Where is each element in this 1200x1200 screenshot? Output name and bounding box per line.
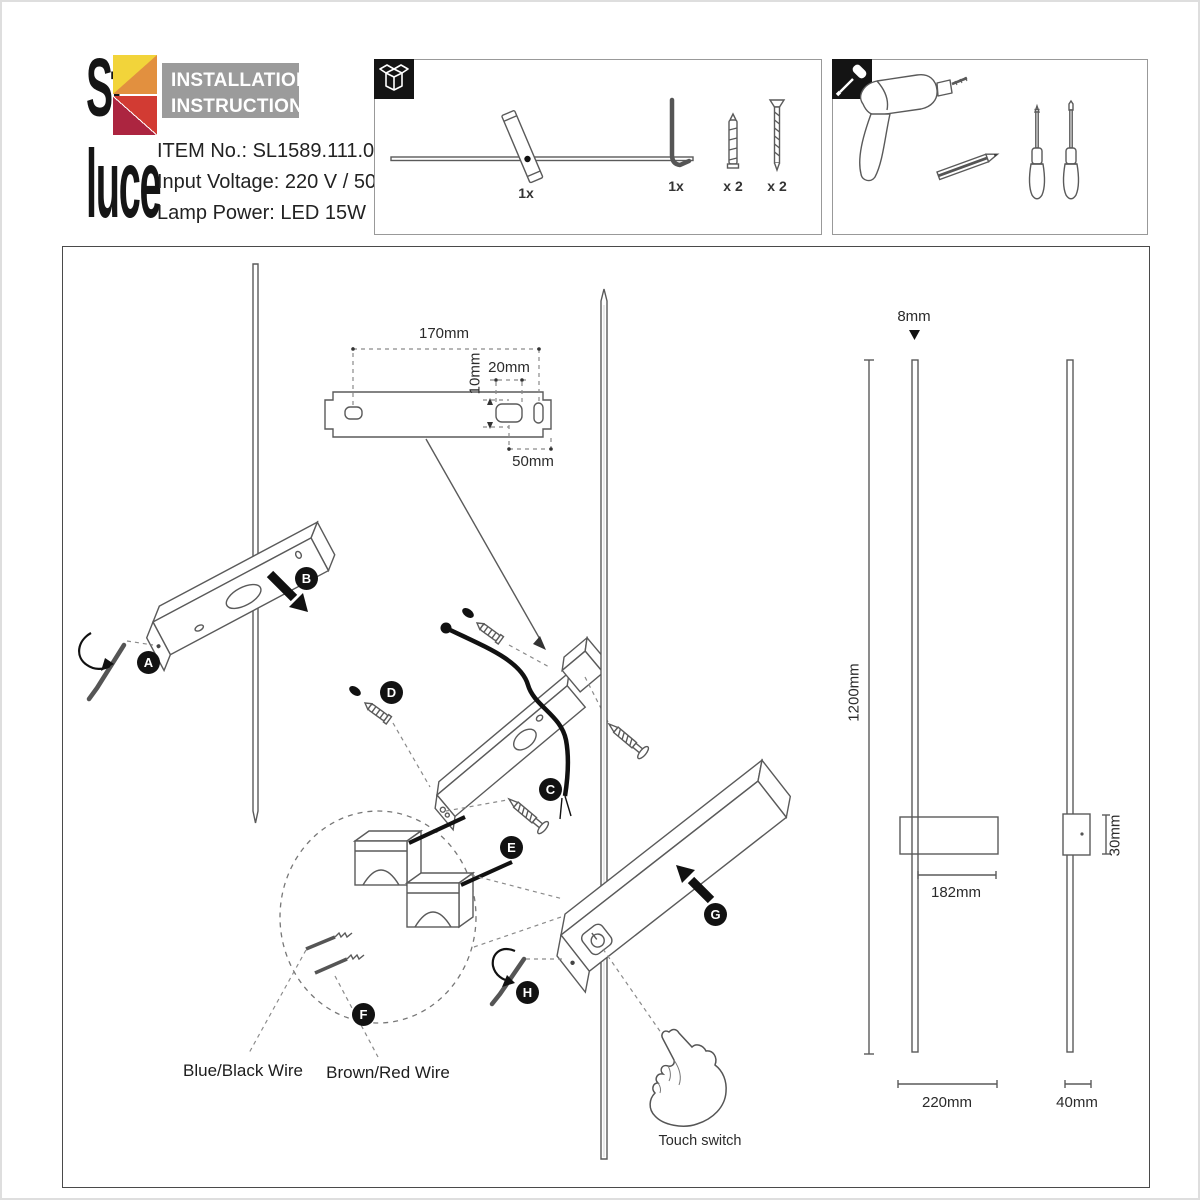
logo-color-mark-icon <box>113 55 157 135</box>
instruction-sheet: St luce INSTALLATION INSTRUCTIONS ITEM N… <box>0 0 1200 1200</box>
hex-key-a <box>89 645 124 699</box>
wall-plug-item <box>728 114 739 168</box>
required-tools-panel <box>832 59 1148 235</box>
package-contents-drawing <box>375 60 821 233</box>
wire-label-brown-red: Brown/Red Wire <box>318 1063 458 1083</box>
step-badge-c: C <box>539 778 562 801</box>
dim-side-width: 40mm <box>1047 1094 1107 1111</box>
lamp-qty: 1x <box>506 185 546 201</box>
step-badge-g: G <box>704 903 727 926</box>
screw-item <box>770 100 784 170</box>
dim-hole-width: 20mm <box>479 359 539 376</box>
lamp-front-assembly <box>79 264 345 823</box>
bracket-dimension-drawing <box>325 347 553 650</box>
phillips-screwdriver-tool <box>1030 106 1045 199</box>
pointing-hand <box>650 1030 726 1127</box>
dim-right-offset: 50mm <box>503 453 563 470</box>
item-number: ITEM No.: SL1589.111.01 <box>157 136 401 167</box>
wall-plug-1 <box>474 619 503 644</box>
dim-rod-diameter: 8mm <box>884 308 944 325</box>
lamp-item <box>391 110 693 183</box>
step-badge-d: D <box>380 681 403 704</box>
dimension-views <box>864 330 1110 1088</box>
product-specs: ITEM No.: SL1589.111.01 Input Voltage: 2… <box>157 136 401 229</box>
pencil-tool <box>937 150 999 179</box>
step-badge-a: A <box>137 651 160 674</box>
wire-label-blue-black: Blue/Black Wire <box>173 1061 313 1081</box>
dim-front-width: 220mm <box>917 1094 977 1111</box>
step-badge-h: H <box>516 981 539 1004</box>
logo-text-bottom: luce <box>86 138 160 234</box>
installation-line-art <box>63 247 1146 1184</box>
title-line-1: INSTALLATION <box>171 68 299 94</box>
touch-switch-label: Touch switch <box>650 1133 750 1149</box>
screw-2 <box>504 793 550 835</box>
wire-connector-2 <box>407 862 512 927</box>
tools-drawing <box>833 60 1147 233</box>
input-voltage: Input Voltage: 220 V / 50Hz <box>157 167 401 198</box>
step-badge-f: F <box>352 1003 375 1026</box>
dim-body-front-width: 182mm <box>926 884 986 901</box>
flat-screwdriver-tool <box>1064 101 1079 199</box>
dim-total-height: 1200mm <box>846 658 863 728</box>
step-badge-e: E <box>500 836 523 859</box>
drill-tool <box>860 75 967 181</box>
title-line-2: INSTRUCTIONS <box>171 94 299 120</box>
document-title: INSTALLATION INSTRUCTIONS <box>162 63 299 118</box>
screw-qty: x 2 <box>757 178 797 194</box>
wall-plug-qty: x 2 <box>713 178 753 194</box>
dim-body-side-depth: 30mm <box>1107 806 1124 866</box>
step-badge-b: B <box>295 567 318 590</box>
dim-bracket-width: 170mm <box>404 325 484 342</box>
installation-diagram-panel: A B C D E F G H 170mm 10mm 20mm 50mm 8mm… <box>62 246 1150 1188</box>
stripped-wires <box>306 933 364 973</box>
package-contents-panel: 1x 1x x 2 x 2 <box>374 59 822 235</box>
hex-key-qty: 1x <box>656 178 696 194</box>
brand-logo: St luce <box>86 52 164 237</box>
lamp-power: Lamp Power: LED 15W <box>157 198 401 229</box>
hex-key-item <box>672 100 689 165</box>
screw-1 <box>604 718 650 760</box>
